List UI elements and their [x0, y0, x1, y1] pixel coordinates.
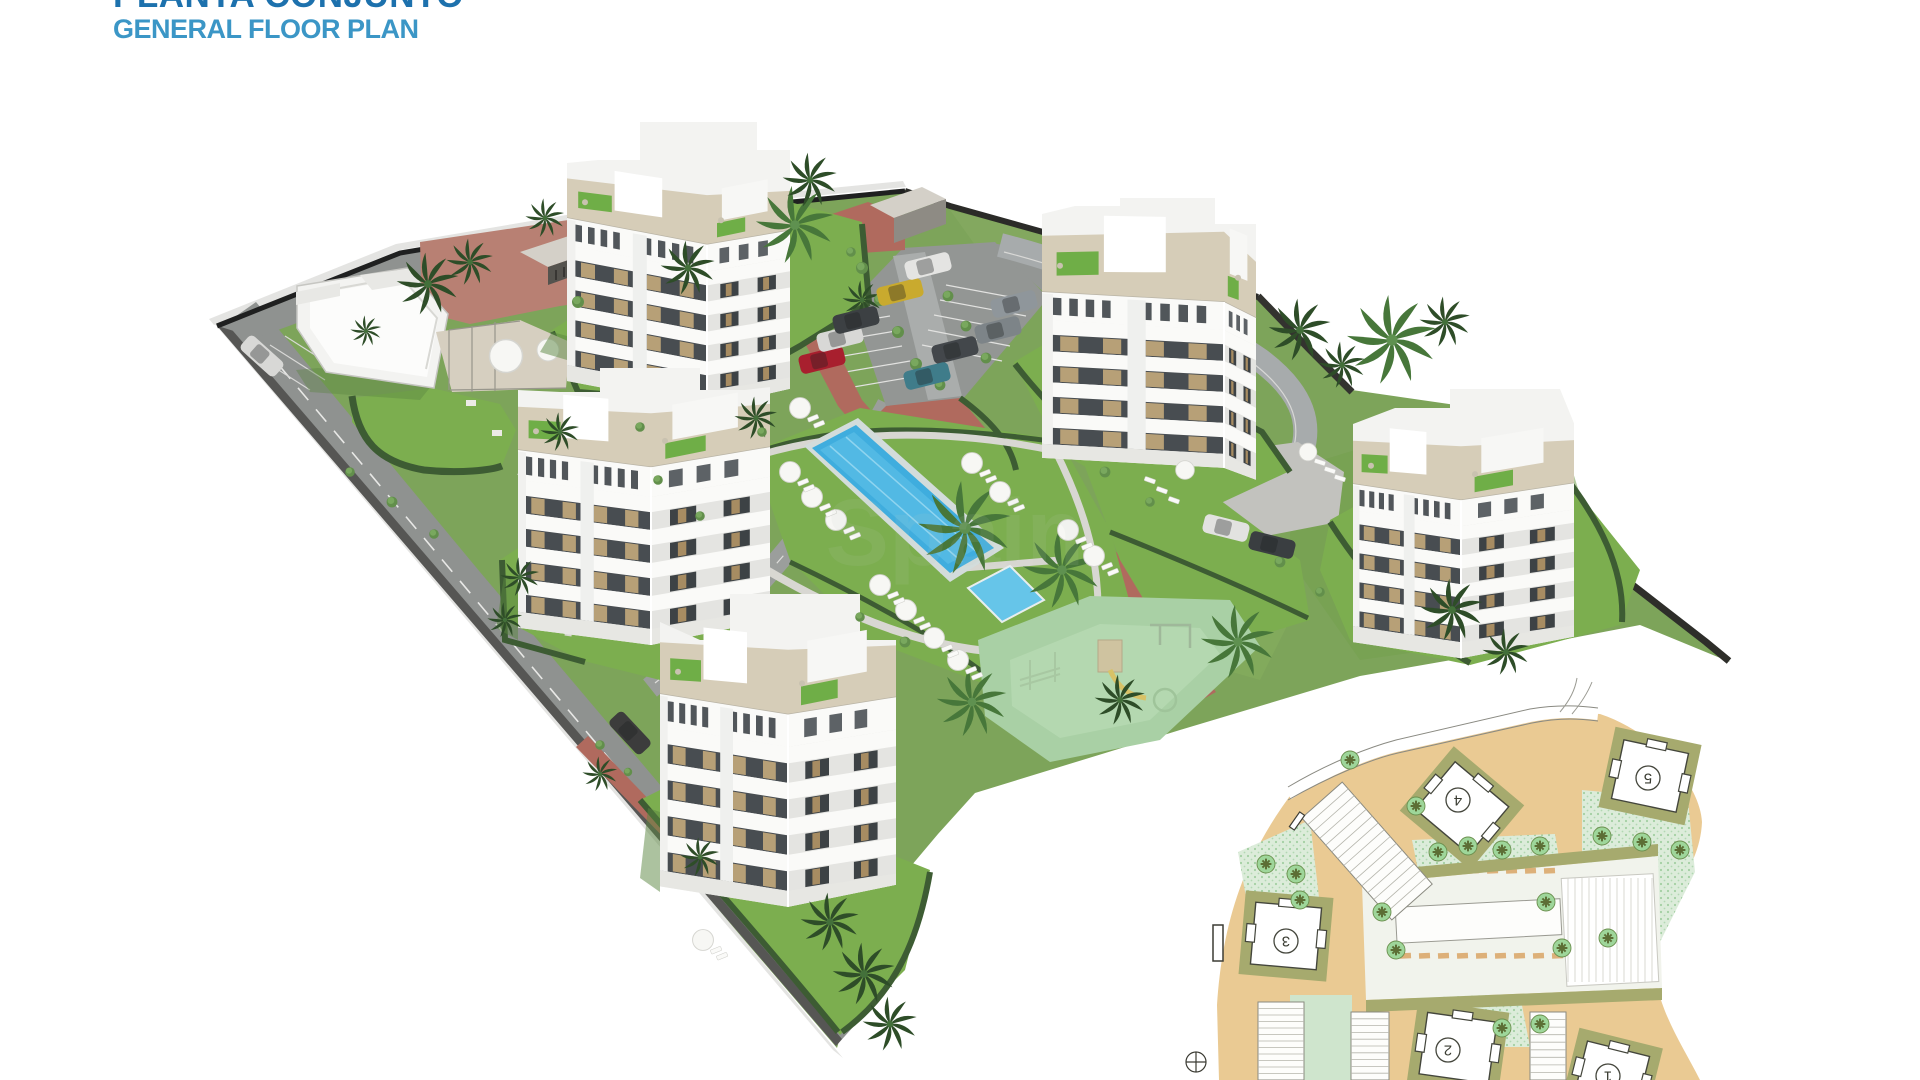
- svg-text:GENERAL FLOOR PLAN: GENERAL FLOOR PLAN: [113, 14, 419, 44]
- svg-text:5: 5: [1644, 770, 1652, 787]
- svg-text:PLANTA CONJUNTO: PLANTA CONJUNTO: [113, 0, 464, 15]
- svg-text:4: 4: [1454, 792, 1462, 809]
- svg-text:Spain: Spain: [826, 480, 1085, 586]
- svg-text:2: 2: [1444, 1042, 1452, 1059]
- svg-text:3: 3: [1282, 933, 1290, 950]
- svg-text:1: 1: [1604, 1068, 1612, 1080]
